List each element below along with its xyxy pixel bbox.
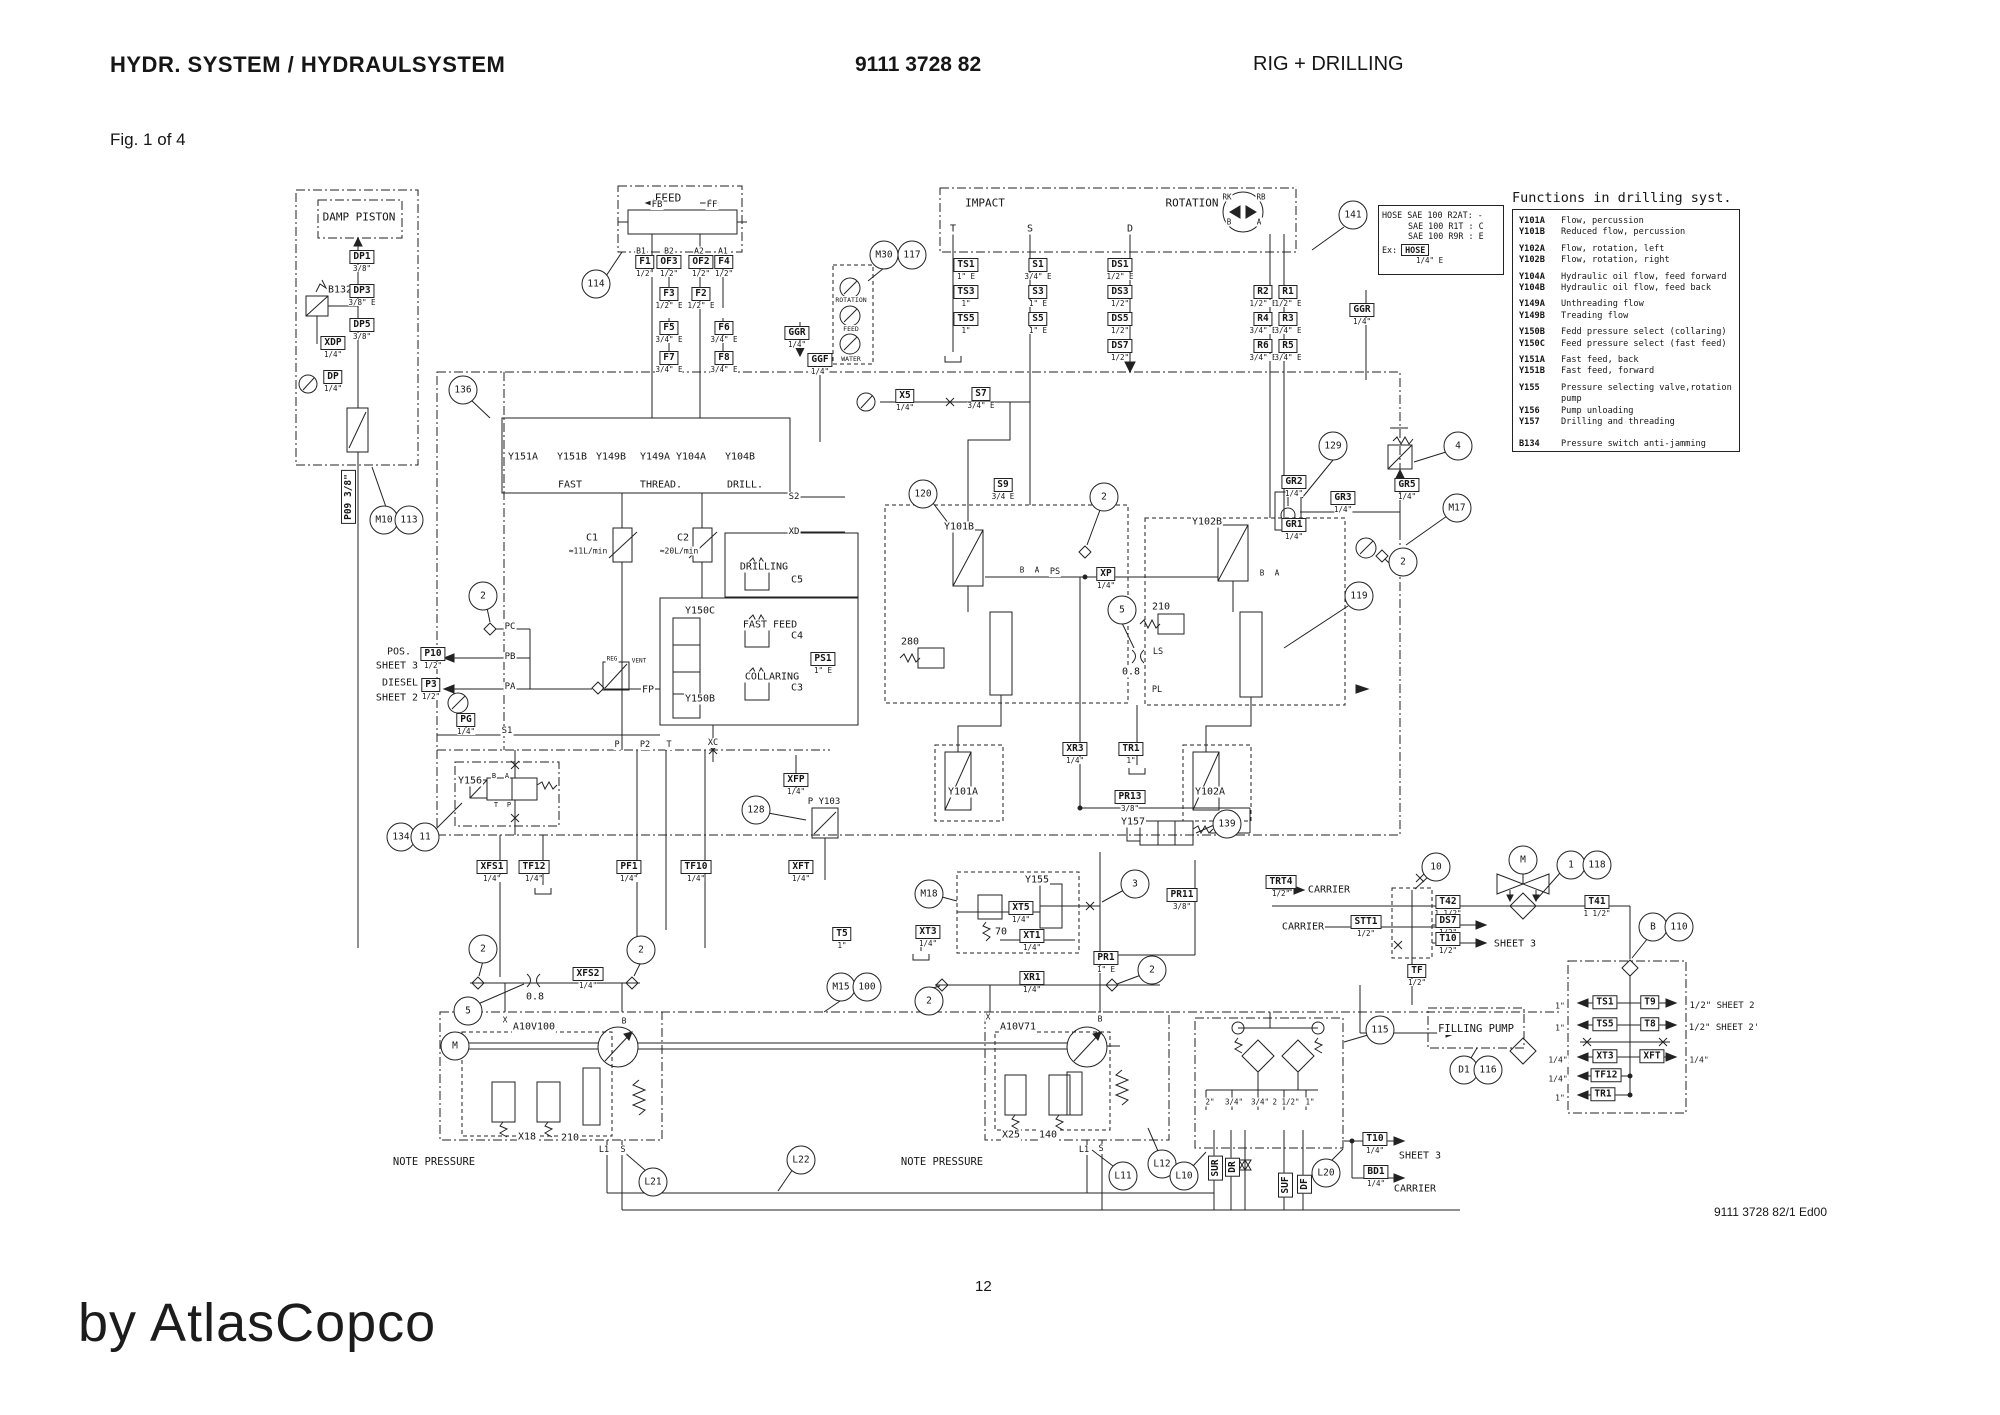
port-code: R6: [1253, 339, 1272, 353]
port-label-dp1: DP13/8": [349, 250, 374, 272]
vertical-port-label-df: DF: [1294, 1174, 1312, 1193]
diagram-text-a: A: [1256, 218, 1263, 227]
port-code: XT1: [1019, 929, 1044, 943]
diagram-text-carrier: CARRIER: [1307, 885, 1351, 896]
legend-description: Flow, rotation, left: [1561, 244, 1664, 255]
port-size: 1": [961, 300, 970, 308]
port-label-s5: S51" E: [1028, 312, 1047, 334]
diagram-text-1-4-: 1/4": [1547, 1075, 1568, 1084]
legend-code: Y150B: [1519, 327, 1561, 338]
legend-code: B134: [1519, 439, 1561, 450]
legend-code: Y101A: [1519, 216, 1561, 227]
legend-code: Y104B: [1519, 283, 1561, 294]
diagram-text-x18: X18: [517, 1132, 537, 1143]
diagram-text-c1: C1: [585, 533, 599, 544]
port-size: 1/2": [715, 270, 733, 278]
port-code: TS5: [1592, 1017, 1617, 1031]
port-label-ts5: TS5: [1592, 1017, 1617, 1031]
port-size: 1/4": [687, 875, 705, 883]
port-label-ggr: GGR1/4": [784, 326, 809, 348]
diagram-text-feed: FEED: [842, 325, 860, 333]
diagram-text-1-: 1": [1304, 1098, 1315, 1107]
port-label-ggr: GGR1/4": [1349, 303, 1374, 325]
callout-115: 115: [1366, 1016, 1395, 1045]
port-code: P3: [421, 678, 440, 692]
hose-spec-box: HOSE SAE 100 R2AT: - SAE 100 R1T : C SAE…: [1378, 205, 1504, 275]
legend-description: Fast feed, forward: [1561, 366, 1654, 377]
port-code: T41: [1584, 895, 1609, 909]
vertical-port-label-p09-3-8-: P09 3/8": [338, 470, 356, 524]
legend-entry: Y149AUnthreading flow: [1519, 299, 1735, 310]
callout-m18: M18: [915, 880, 944, 909]
diagram-text--20l-min: ≈20L/min: [659, 547, 700, 556]
port-code: STT1: [1351, 915, 1382, 929]
legend-entry: Y151BFast feed, forward: [1519, 366, 1735, 377]
port-label-f4: F41/2": [714, 255, 733, 277]
diagram-text-pl: PL: [1151, 685, 1163, 695]
legend-description: Fedd pressure select (collaring): [1561, 327, 1727, 338]
port-code: GR3: [1330, 491, 1355, 505]
callout-128: 128: [742, 796, 771, 825]
diagram-text-p2: P2: [639, 740, 651, 750]
legend-description: Fast feed, back: [1561, 355, 1639, 366]
port-code: XFT: [1639, 1049, 1664, 1063]
callout-114: 114: [582, 270, 611, 299]
port-code: XFP: [783, 773, 808, 787]
port-size: 1/4": [792, 875, 810, 883]
diagram-text-thread-: THREAD.: [639, 480, 683, 491]
port-label-ds3: DS31/2": [1107, 285, 1132, 307]
port-size: 1/4": [620, 875, 638, 883]
port-size: 1" E: [814, 667, 832, 675]
port-label-s7: S73/4" E: [967, 387, 994, 409]
port-code: TS5: [953, 312, 978, 326]
port-code: DS1: [1107, 258, 1132, 272]
port-label-gr3: GR31/4": [1330, 491, 1355, 513]
vertical-port-label-suf: SUF: [1275, 1172, 1293, 1197]
legend-code: Y150C: [1519, 339, 1561, 350]
diagram-text-210: 210: [1151, 602, 1171, 613]
legend-description: Flow, percussion: [1561, 216, 1644, 227]
callout-2: 2: [915, 987, 944, 1016]
diagram-text-t: T: [493, 801, 499, 809]
diagram-text-y104b: Y104B: [724, 452, 756, 463]
dashed-groups: [462, 265, 1432, 1136]
diagram-text-l1: L1: [1078, 1145, 1090, 1155]
port-label-of3: OF31/2": [656, 255, 681, 277]
port-size: 1/4": [1012, 916, 1030, 924]
port-label-ts1: TS1: [1592, 995, 1617, 1009]
diagram-text-x25: X25: [1001, 1130, 1021, 1141]
port-size: 1/2": [660, 270, 678, 278]
callout-117: 117: [898, 241, 927, 270]
port-size: 1/4": [579, 982, 597, 990]
port-label-s3: S31" E: [1028, 285, 1047, 307]
port-size: 1/4": [324, 351, 342, 359]
port-code: BD1: [1363, 1165, 1388, 1179]
port-size: 1/4": [483, 875, 501, 883]
diagram-text-0-8: 0.8: [525, 992, 545, 1003]
port-label-tf12: TF12: [1591, 1068, 1622, 1082]
port-label-dp3: DP33/8" E: [348, 284, 375, 306]
port-size: 1/4": [1097, 582, 1115, 590]
legend-code: Y149A: [1519, 299, 1561, 310]
port-label-s9: S93/4 E: [992, 478, 1015, 500]
callout-113: 113: [395, 506, 424, 535]
diagram-text-ff: FF: [706, 200, 719, 210]
legend-entry: Y151AFast feed, back: [1519, 355, 1735, 366]
port-label-f8: F83/4" E: [710, 351, 737, 373]
functions-legend: Functions in drilling syst. Y101AFlow, p…: [1512, 190, 1740, 452]
port-size: 1/4": [324, 385, 342, 393]
port-size: 1/2": [1272, 890, 1290, 898]
port-code: TS1: [953, 258, 978, 272]
port-size: 1/4": [896, 404, 914, 412]
legend-description: Pressure switch anti-jamming: [1561, 439, 1706, 450]
vertical-port-label-dr: DR: [1222, 1157, 1240, 1176]
port-code: F7: [659, 351, 678, 365]
document-revision: 9111 3728 82/1 Ed00: [1714, 1205, 1827, 1219]
hose-line-1: HOSE SAE 100 R2AT: -: [1382, 210, 1500, 221]
diagram-text-2-1-2-: 2 1/2": [1271, 1098, 1300, 1107]
legend-entry: Y101AFlow, percussion: [1519, 216, 1735, 227]
port-code: DS7: [1107, 339, 1132, 353]
port-label-r5: R53/4" E: [1274, 339, 1301, 361]
legend-description: Pressure selecting valve,rotation pump: [1561, 383, 1735, 406]
legend-code: Y102A: [1519, 244, 1561, 255]
legend-description: Hydraulic oil flow, feed forward: [1561, 272, 1727, 283]
diagram-text-y102a: Y102A: [1194, 787, 1226, 798]
diagram-text-fp: FP: [641, 685, 655, 696]
hose-ex-label: Ex:: [1382, 245, 1397, 256]
port-label-tf: TF1/2": [1407, 964, 1426, 986]
legend-code: Y151A: [1519, 355, 1561, 366]
legend-description: Reduced flow, percussion: [1561, 227, 1685, 238]
diagram-text-s2: S2: [788, 492, 801, 502]
port-size: 1" E: [1029, 327, 1047, 335]
callout-119: 119: [1345, 582, 1374, 611]
diagram-text-y101b: Y101B: [943, 522, 975, 533]
byline: by AtlasCopco: [78, 1292, 436, 1354]
port-size: 1/4": [1023, 986, 1041, 994]
port-code: TS3: [953, 285, 978, 299]
port-label-r1: R11/2" E: [1274, 285, 1301, 307]
port-code: P10: [420, 647, 445, 661]
port-size: 1/2": [1111, 300, 1129, 308]
port-size: 1/2" E: [1274, 300, 1301, 308]
diagram-text-note-pressure: NOTE PRESSURE: [392, 1156, 476, 1168]
legend-entry: Y149BTreading flow: [1519, 311, 1735, 322]
port-code: SUF: [1278, 1172, 1293, 1197]
port-size: 1/2": [1357, 930, 1375, 938]
diagram-text-pb: PB: [504, 652, 517, 662]
legend-code: Y104A: [1519, 272, 1561, 283]
port-label-xft: XFT: [1639, 1049, 1664, 1063]
port-label-p3: P31/2": [421, 678, 440, 700]
port-code: T42: [1435, 895, 1460, 909]
callout-l22: L22: [787, 1146, 816, 1175]
legend-description: Unthreading flow: [1561, 299, 1644, 310]
legend-description: Treading flow: [1561, 311, 1628, 322]
port-code: TF12: [1591, 1068, 1622, 1082]
port-label-t9: T9: [1640, 995, 1659, 1009]
port-code: GR1: [1281, 518, 1306, 532]
diagram-text-d: D: [1126, 224, 1134, 235]
legend-description: Pump unloading: [1561, 406, 1633, 417]
port-code: DR: [1225, 1157, 1240, 1176]
port-label-t5: T51": [832, 927, 851, 949]
diagram-text-sheet-3: SHEET 3: [1398, 1151, 1442, 1162]
diagram-text-y151b: Y151B: [556, 452, 588, 463]
port-code: R2: [1253, 285, 1272, 299]
port-label-f2: F21/2" E: [687, 287, 714, 309]
port-label-x5: X51/4": [895, 389, 914, 411]
port-code: R4: [1253, 312, 1272, 326]
diagram-text-p-y103: P Y103: [807, 797, 842, 807]
diagram-text-pos-: POS.: [386, 647, 412, 658]
port-label-f3: F31/2" E: [655, 287, 682, 309]
port-size: 1/2" E: [1249, 300, 1276, 308]
diagram-text-drill-: DRILL.: [726, 480, 764, 491]
port-code: TR1: [1118, 742, 1143, 756]
diagram-text-diesel: DIESEL: [381, 678, 419, 689]
port-size: 1/4": [919, 940, 937, 948]
diagram-text-2-: 2": [1204, 1098, 1215, 1107]
hose-line-2: SAE 100 R1T : C: [1382, 221, 1500, 232]
port-label-tr1: TR1: [1590, 1087, 1615, 1101]
port-code: GGR: [1349, 303, 1374, 317]
port-size: 3/4" E: [1274, 327, 1301, 335]
legend-entry: Y104AHydraulic oil flow, feed forward: [1519, 272, 1735, 283]
port-size: 1/4": [1398, 493, 1416, 501]
port-size: 3/8": [1121, 805, 1139, 813]
page-number: 12: [975, 1278, 992, 1295]
port-label-r3: R33/4" E: [1274, 312, 1301, 334]
port-code: XFT: [788, 860, 813, 874]
callout-2: 2: [627, 936, 656, 965]
legend-code: Y102B: [1519, 255, 1561, 266]
diagram-text-p: P: [506, 801, 512, 809]
port-label-pr1: PR11" E: [1093, 951, 1118, 973]
port-code: PF1: [616, 860, 641, 874]
diagram-text-1-4-: 1/4": [1547, 1056, 1568, 1065]
diagram-text-pa: PA: [504, 682, 517, 692]
callout-l20: L20: [1312, 1159, 1341, 1188]
diagram-text-x: X: [985, 1013, 992, 1022]
port-label-tf12: TF121/4": [519, 860, 550, 882]
callout-4: 4: [1444, 432, 1473, 461]
port-code: XT5: [1008, 901, 1033, 915]
port-code: SUR: [1208, 1155, 1223, 1180]
port-code: TF12: [519, 860, 550, 874]
port-size: 1/2": [1408, 979, 1426, 987]
port-code: DS3: [1107, 285, 1132, 299]
port-code: OF2: [688, 255, 713, 269]
port-size: 3/4" E: [1024, 273, 1051, 281]
port-label-dp5: DP53/8": [349, 318, 374, 340]
diagram-text-y104a: Y104A: [675, 452, 707, 463]
port-code: S3: [1028, 285, 1047, 299]
diagram-text-reg: REG: [606, 656, 619, 663]
port-code: S7: [971, 387, 990, 401]
port-label-ts5: TS51": [953, 312, 978, 334]
diagram-text-a10v71: A10V71: [999, 1022, 1037, 1033]
callout-2: 2: [1138, 956, 1167, 985]
hose-size: 1/4" E: [1416, 256, 1500, 265]
legend-entry: Y155Pressure selecting valve,rotation pu…: [1519, 383, 1735, 406]
port-size: 1/4": [1285, 533, 1303, 541]
port-label-f1: F11/2": [635, 255, 654, 277]
legend-entry: Y157Drilling and threading: [1519, 417, 1735, 428]
diagram-text-y157: Y157: [1120, 817, 1146, 828]
port-code: PR11: [1167, 888, 1198, 902]
diagram-text-b: B: [1226, 218, 1233, 227]
callout-m17: M17: [1443, 494, 1472, 523]
port-size: 3/8" E: [348, 299, 375, 307]
port-label-gr1: GR11/4": [1281, 518, 1306, 540]
port-label-t10: T101/2": [1435, 932, 1460, 954]
port-code: P09 3/8": [341, 470, 356, 524]
legend-code: Y155: [1519, 383, 1561, 406]
port-label-pr13: PR133/8": [1115, 790, 1146, 812]
callout-l21: L21: [639, 1168, 668, 1197]
callout-l11: L11: [1109, 1162, 1138, 1191]
port-label-stt1: STT11/2": [1351, 915, 1382, 937]
port-code: F5: [659, 321, 678, 335]
diagram-text-sheet-3: SHEET 3: [1493, 939, 1537, 950]
diagram-text-y149a: Y149A: [639, 452, 671, 463]
port-size: 3/4" E: [967, 402, 994, 410]
legend-code: Y149B: [1519, 311, 1561, 322]
diagram-text-x: X: [502, 1016, 509, 1025]
port-code: T8: [1640, 1017, 1659, 1031]
port-label-pf1: PF11/4": [616, 860, 641, 882]
diagram-text-b: B: [1097, 1015, 1104, 1024]
port-code: R5: [1278, 339, 1297, 353]
legend-code: Y151B: [1519, 366, 1561, 377]
diagram-text-b: B: [491, 772, 497, 780]
port-label-trt4: TRT41/2": [1266, 875, 1297, 897]
port-code: XR1: [1019, 971, 1044, 985]
port-code: F1: [635, 255, 654, 269]
port-label-t8: T8: [1640, 1017, 1659, 1031]
diagram-text-carrier: CARRIER: [1281, 922, 1325, 933]
vertical-port-label-sur: SUR: [1205, 1155, 1223, 1180]
diagram-text-y101a: Y101A: [947, 787, 979, 798]
port-code: PS1: [810, 652, 835, 666]
port-code: PG: [456, 713, 475, 727]
port-code: X5: [895, 389, 914, 403]
callout-11: 11: [411, 823, 440, 852]
legend-description: Hydraulic oil flow, feed back: [1561, 283, 1711, 294]
port-code: OF3: [656, 255, 681, 269]
legend-code: Y157: [1519, 417, 1561, 428]
legend-entry: Y101BReduced flow, percussion: [1519, 227, 1735, 238]
diagram-text-1-2-sheet-2: 1/2" SHEET 2: [1688, 1001, 1755, 1011]
port-code: S1: [1028, 258, 1047, 272]
port-size: 3/4" E: [710, 366, 737, 374]
port-size: 1/4": [788, 341, 806, 349]
port-label-r4: R43/4" E: [1249, 312, 1276, 334]
diagram-text-t: T: [949, 224, 957, 235]
legend-title: Functions in drilling syst.: [1512, 190, 1740, 206]
port-code: R1: [1278, 285, 1297, 299]
legend-entry: Y150CFeed pressure select (fast feed): [1519, 339, 1735, 350]
callout-139: 139: [1213, 810, 1242, 839]
port-size: 3/4" E: [710, 336, 737, 344]
legend-entry: B134Pressure switch anti-jamming: [1519, 439, 1735, 450]
callout-129: 129: [1319, 432, 1348, 461]
callout-b: B: [1639, 913, 1668, 942]
callout-2: 2: [1090, 483, 1119, 512]
port-size: 1 1/2": [1583, 910, 1610, 918]
port-code: DP: [323, 370, 342, 384]
port-label-ggf: GGF1/4": [807, 353, 832, 375]
diagram-text-y102b: Y102B: [1191, 517, 1223, 528]
diagram-text-210: 210: [560, 1133, 580, 1144]
diagram-text-a: A: [504, 772, 510, 780]
port-code: GR5: [1394, 478, 1419, 492]
diagram-text-140: 140: [1038, 1130, 1058, 1141]
callout-141: 141: [1339, 201, 1368, 230]
port-size: 1/4": [457, 728, 475, 736]
diagram-text-b: B: [1259, 569, 1266, 578]
port-code: DS5: [1107, 312, 1132, 326]
port-size: 1": [837, 942, 846, 950]
port-label-bd1: BD11/4": [1363, 1165, 1388, 1187]
port-size: 1/4": [787, 788, 805, 796]
port-label-xr1: XR11/4": [1019, 971, 1044, 993]
port-code: XT3: [915, 925, 940, 939]
diagram-text-y150c: Y150C: [684, 606, 716, 617]
port-label-ts1: TS11" E: [953, 258, 978, 280]
diagram-text-s: S: [619, 1145, 626, 1155]
port-label-xp: XP1/4": [1096, 567, 1115, 589]
diagram-text-b: B: [1019, 566, 1026, 575]
port-label-xfp: XFP1/4": [783, 773, 808, 795]
port-size: 1/4": [1366, 1147, 1384, 1155]
diagram-text-rotation: ROTATION: [834, 296, 867, 304]
diagram-text-xd: XD: [788, 527, 801, 537]
diagram-text-filling-pump: FILLING PUMP: [1437, 1023, 1515, 1035]
legend-entry: Y150BFedd pressure select (collaring): [1519, 327, 1735, 338]
port-code: F4: [714, 255, 733, 269]
callout-1: 1: [1557, 851, 1586, 880]
port-code: DP1: [349, 250, 374, 264]
port-size: 1/4": [1367, 1180, 1385, 1188]
port-size: 1/2" E: [655, 302, 682, 310]
diagram-text-p: P: [613, 740, 620, 750]
port-label-xt1: XT11/4": [1019, 929, 1044, 951]
port-label-pg: PG1/4": [456, 713, 475, 735]
callout-100: 100: [853, 973, 882, 1002]
port-label-ds5: DS51/2": [1107, 312, 1132, 334]
port-size: 1/2": [424, 662, 442, 670]
callout-136: 136: [449, 376, 478, 405]
diagram-text-s1: S1: [501, 726, 514, 736]
diagram-text-water: WATER: [840, 355, 862, 363]
hose-word: HOSE: [1401, 244, 1429, 257]
port-code: T10: [1435, 932, 1460, 946]
diagram-text-fast: FAST: [557, 480, 583, 491]
diagram-text-y155: Y155: [1024, 875, 1050, 886]
port-code: DP5: [349, 318, 374, 332]
port-code: XR3: [1062, 742, 1087, 756]
port-code: TRT4: [1266, 875, 1297, 889]
diagram-text-1-: 1": [1554, 1094, 1566, 1103]
diagram-text-collaring: COLLARING: [744, 672, 800, 683]
port-code: PR13: [1115, 790, 1146, 804]
